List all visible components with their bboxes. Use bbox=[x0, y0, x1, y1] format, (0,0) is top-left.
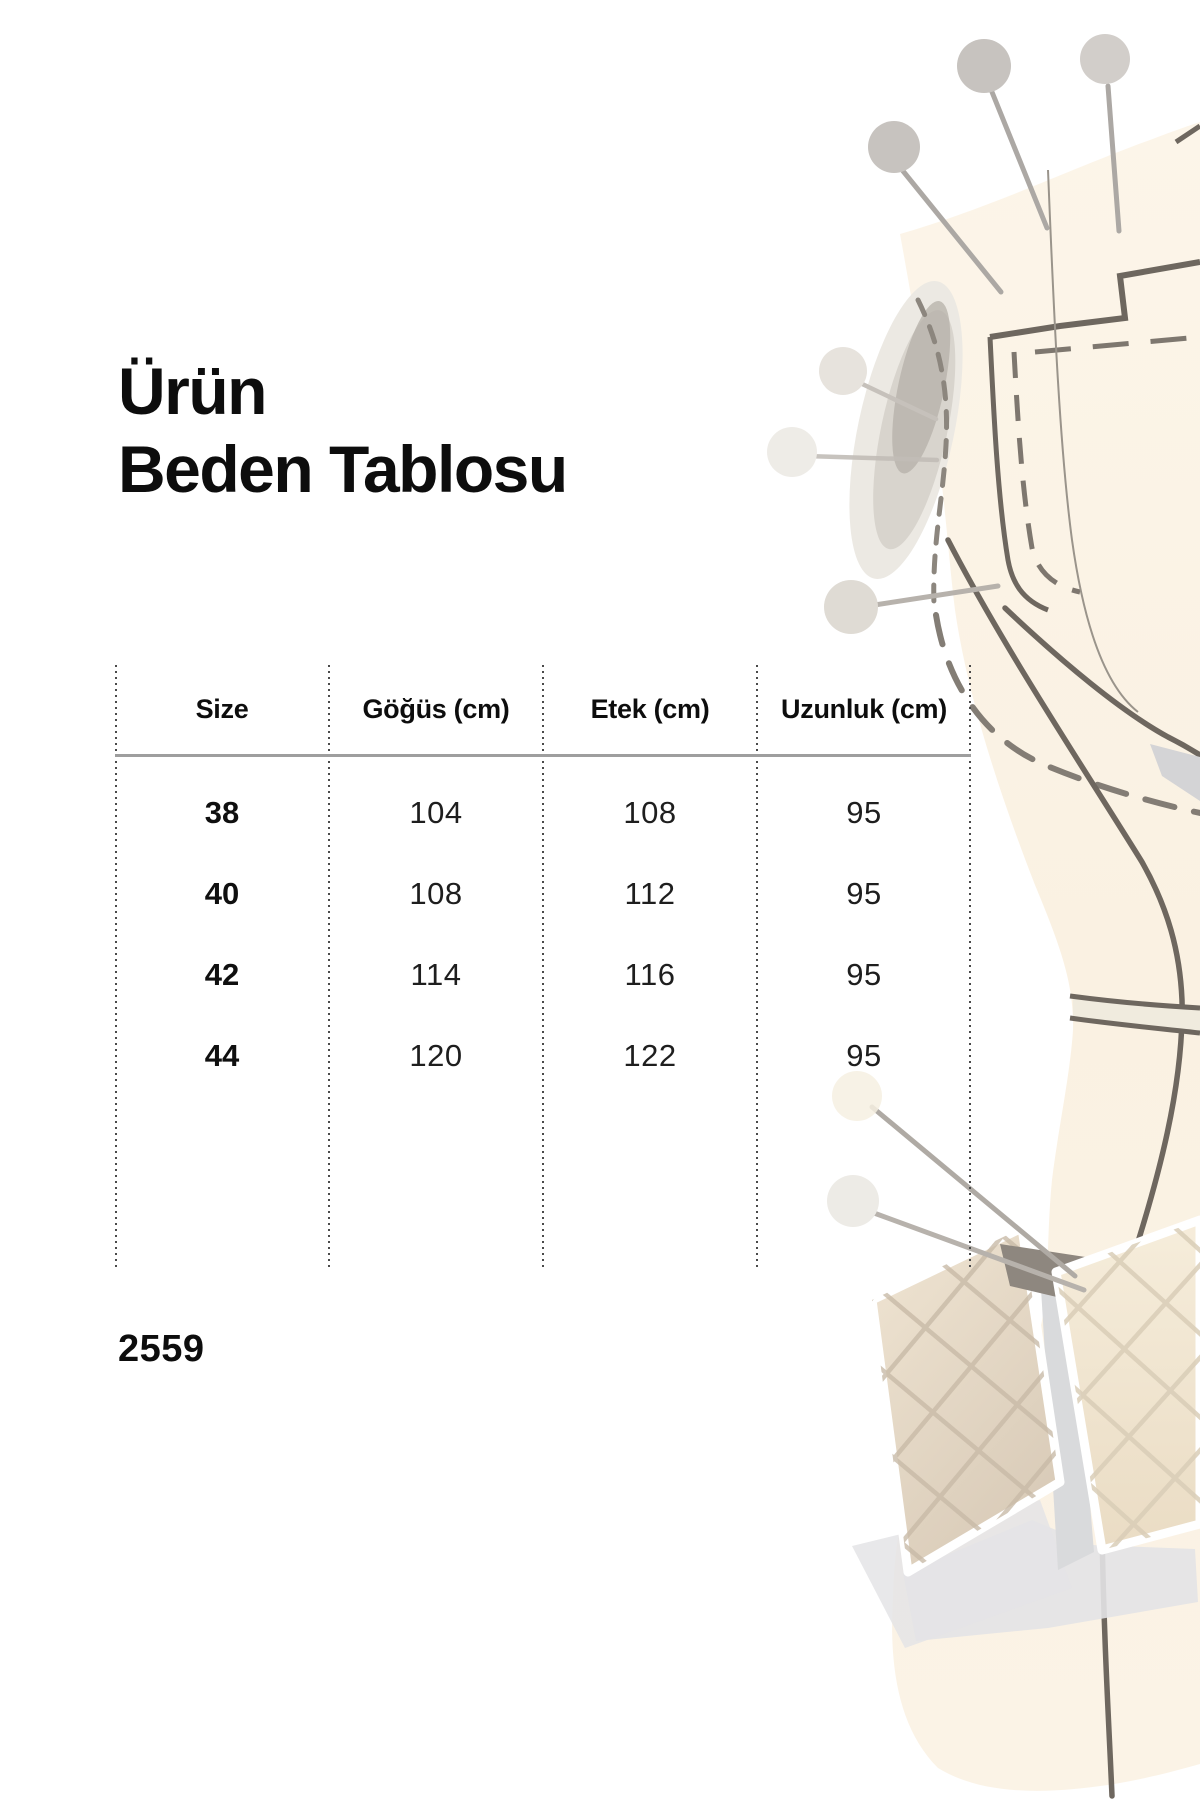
gogus-cell: 108 bbox=[329, 876, 543, 912]
column-header-etek: Etek (cm) bbox=[543, 694, 757, 725]
table-row: 42 114 116 95 bbox=[115, 934, 971, 1015]
uzunluk-cell: 95 bbox=[757, 795, 971, 831]
table-body: 38 104 108 95 40 108 112 95 42 114 116 9… bbox=[115, 757, 971, 1096]
size-cell: 40 bbox=[115, 876, 329, 912]
gogus-cell: 114 bbox=[329, 957, 543, 993]
table-row: 44 120 122 95 bbox=[115, 1015, 971, 1096]
size-table: Size Göğüs (cm) Etek (cm) Uzunluk (cm) 3… bbox=[115, 665, 971, 1268]
size-chart-page: Ürün Beden Tablosu Size Göğüs (cm) Etek … bbox=[0, 0, 1200, 1800]
size-cell: 44 bbox=[115, 1038, 329, 1074]
page-title-line1: Ürün bbox=[118, 354, 266, 428]
uzunluk-cell: 95 bbox=[757, 957, 971, 993]
etek-cell: 108 bbox=[543, 795, 757, 831]
table-row: 38 104 108 95 bbox=[115, 772, 971, 853]
uzunluk-cell: 95 bbox=[757, 876, 971, 912]
size-cell: 42 bbox=[115, 957, 329, 993]
page-title: Ürün Beden Tablosu bbox=[118, 352, 567, 508]
column-header-uzunluk: Uzunluk (cm) bbox=[757, 694, 971, 725]
size-cell: 38 bbox=[115, 795, 329, 831]
page-title-line2: Beden Tablosu bbox=[118, 432, 567, 506]
etek-cell: 116 bbox=[543, 957, 757, 993]
etek-cell: 112 bbox=[543, 876, 757, 912]
column-header-size: Size bbox=[115, 694, 329, 725]
table-header-row: Size Göğüs (cm) Etek (cm) Uzunluk (cm) bbox=[115, 665, 971, 754]
table-row: 40 108 112 95 bbox=[115, 853, 971, 934]
gogus-cell: 104 bbox=[329, 795, 543, 831]
uzunluk-cell: 95 bbox=[757, 1038, 971, 1074]
column-header-gogus: Göğüs (cm) bbox=[329, 694, 543, 725]
etek-cell: 122 bbox=[543, 1038, 757, 1074]
gogus-cell: 120 bbox=[329, 1038, 543, 1074]
product-code: 2559 bbox=[118, 1328, 205, 1371]
